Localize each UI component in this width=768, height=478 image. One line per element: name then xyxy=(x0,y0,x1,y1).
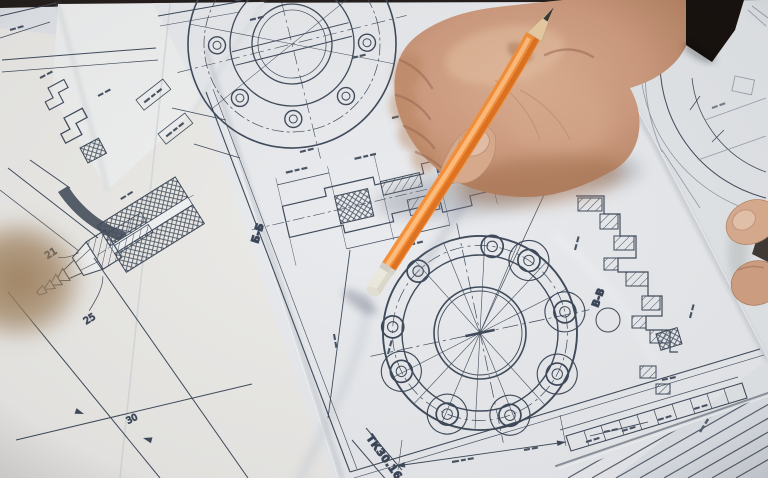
photo-vignette xyxy=(0,0,768,478)
photo-blueprint-scene: 21 25 30 xyxy=(0,0,768,478)
